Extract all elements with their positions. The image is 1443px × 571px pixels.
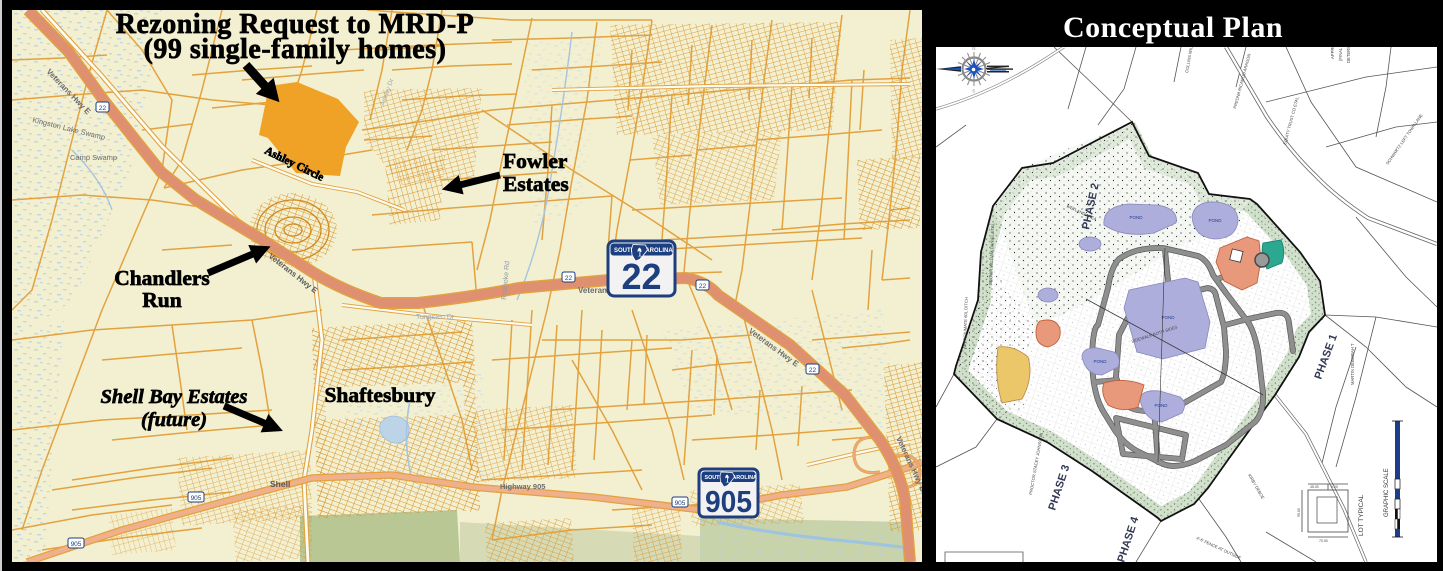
svg-text:POND: POND xyxy=(1208,218,1222,223)
svg-text:45.00: 45.00 xyxy=(1310,485,1319,489)
svg-text:Camp Swamp: Camp Swamp xyxy=(70,153,117,162)
svg-text:Fowler: Fowler xyxy=(503,149,568,173)
svg-text:22: 22 xyxy=(809,367,817,374)
svg-text:(future): (future) xyxy=(141,409,207,431)
svg-text:905: 905 xyxy=(705,484,752,519)
svg-text:6.00: 6.00 xyxy=(1331,485,1338,489)
svg-text:APPROXIMATE 60' DITCH LOCATION: APPROXIMATE 60' DITCH LOCATION xyxy=(1330,47,1335,59)
svg-text:(FINAL FORT LOCATION TO BE: (FINAL FORT LOCATION TO BE xyxy=(1338,47,1343,61)
svg-text:Run: Run xyxy=(142,288,181,312)
svg-text:Tungsten Dr: Tungsten Dr xyxy=(416,314,455,321)
svg-text:LOT TYPICAL: LOT TYPICAL xyxy=(1358,494,1365,536)
svg-text:905: 905 xyxy=(675,500,686,507)
svg-text:70.00: 70.00 xyxy=(1319,539,1328,543)
svg-text:Chandlers: Chandlers xyxy=(114,266,210,290)
svg-text:GRAPHIC SCALE: GRAPHIC SCALE xyxy=(1384,468,1390,517)
svg-text:Estates: Estates xyxy=(503,172,569,196)
svg-text:POND: POND xyxy=(1161,315,1175,320)
svg-text:(99 single-family homes): (99 single-family homes) xyxy=(144,34,447,65)
svg-text:S: S xyxy=(972,89,975,94)
svg-text:Shell Bay Estates: Shell Bay Estates xyxy=(101,386,248,408)
svg-text:22: 22 xyxy=(565,275,573,282)
svg-text:Highway 905: Highway 905 xyxy=(500,482,545,491)
svg-text:22: 22 xyxy=(699,283,707,290)
svg-text:POND: POND xyxy=(1093,359,1107,364)
svg-text:Shaftesbury: Shaftesbury xyxy=(324,383,435,407)
svg-text:905: 905 xyxy=(71,541,82,548)
svg-text:DETERMINED BY TOPOGRAPHIC: DETERMINED BY TOPOGRAPHIC xyxy=(1346,47,1351,63)
svg-text:95.00: 95.00 xyxy=(1297,508,1301,517)
svg-text:MARTIN DEBORAH T: MARTIN DEBORAH T xyxy=(1350,343,1355,385)
svg-text:22: 22 xyxy=(621,256,661,297)
svg-text:POND: POND xyxy=(1129,215,1143,220)
svg-text:905: 905 xyxy=(191,495,202,502)
svg-text:N: N xyxy=(972,47,975,51)
svg-text:22: 22 xyxy=(99,105,107,112)
svg-text:POND: POND xyxy=(1154,403,1168,408)
svg-text:Shell: Shell xyxy=(270,479,290,489)
